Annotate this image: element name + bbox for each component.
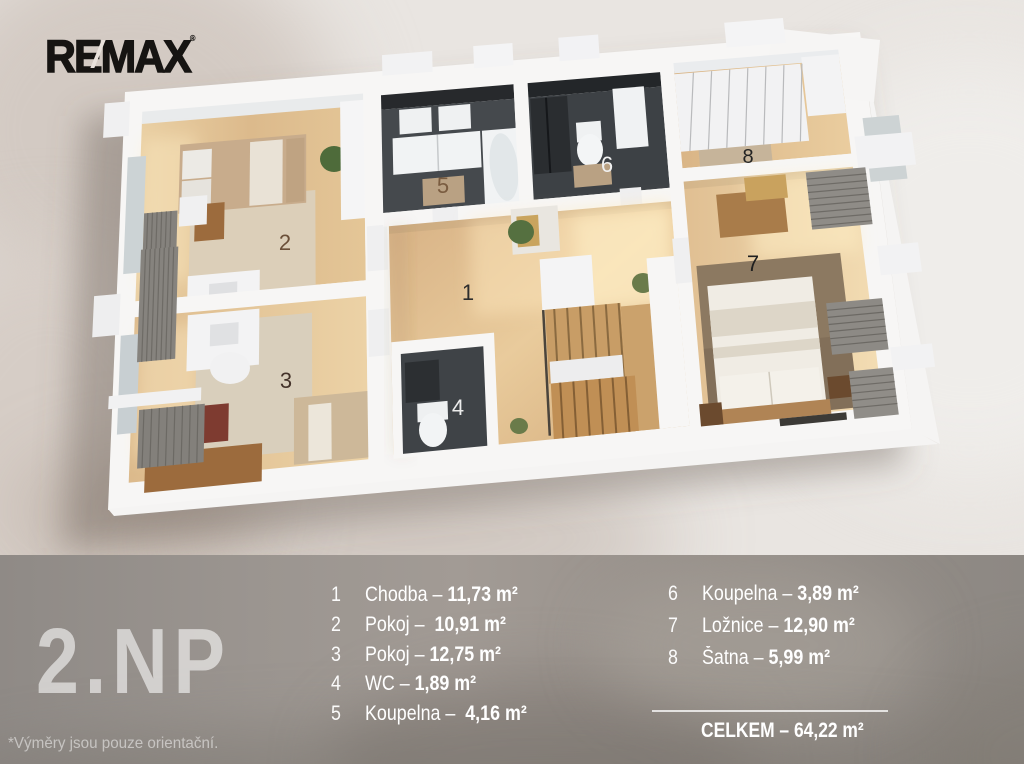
svg-text:1: 1 bbox=[462, 280, 474, 305]
svg-text:4: 4 bbox=[452, 395, 464, 420]
svg-text:8: 8 bbox=[742, 146, 753, 168]
svg-text:6: 6 bbox=[601, 152, 613, 177]
svg-text:2: 2 bbox=[279, 230, 291, 255]
svg-text:7: 7 bbox=[747, 251, 759, 276]
svg-text:3: 3 bbox=[280, 368, 292, 393]
svg-text:5: 5 bbox=[437, 173, 449, 198]
